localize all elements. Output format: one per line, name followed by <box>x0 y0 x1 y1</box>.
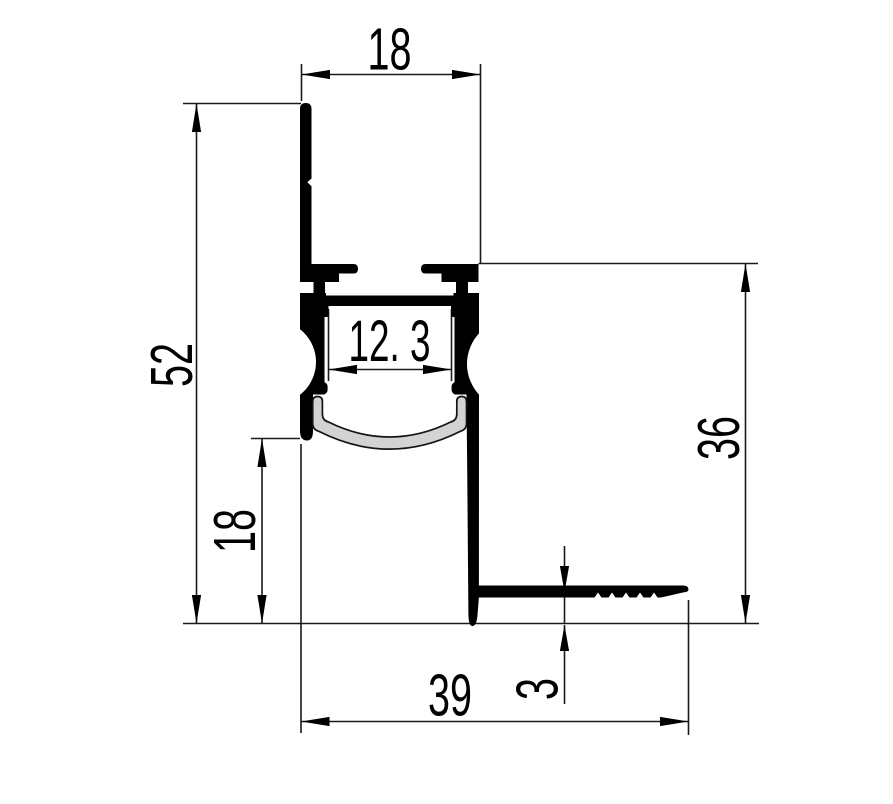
svg-text:36: 36 <box>686 416 752 460</box>
svg-text:39: 39 <box>428 663 472 729</box>
svg-text:18: 18 <box>368 17 412 83</box>
svg-text:52: 52 <box>139 343 205 387</box>
svg-text:12. 3: 12. 3 <box>349 309 431 374</box>
svg-text:18: 18 <box>202 509 268 553</box>
svg-text:3: 3 <box>505 678 571 700</box>
